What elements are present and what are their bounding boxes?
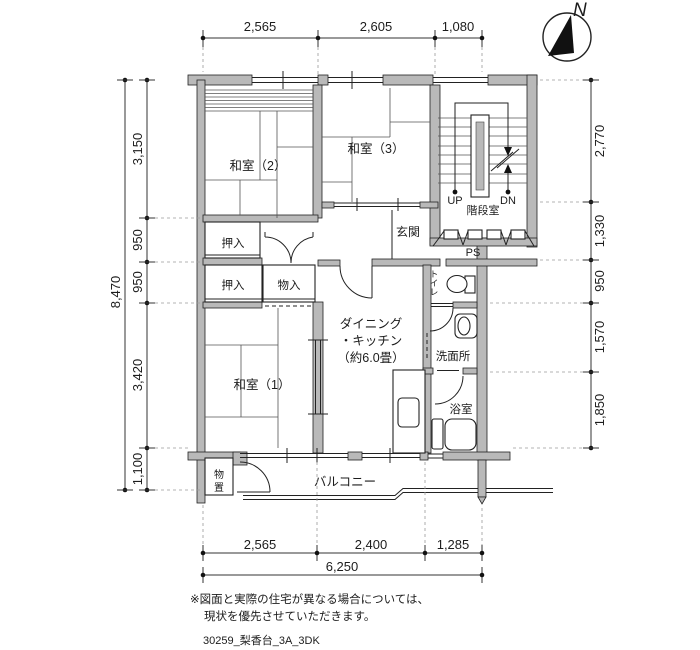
north-arrow-icon <box>548 15 574 56</box>
balcony <box>243 460 553 504</box>
dim-top-3: 1,080 <box>442 19 475 34</box>
dim-right-1: 2,770 <box>592 125 607 158</box>
dim-top-2: 2,605 <box>360 19 393 34</box>
bathroom-door <box>435 376 463 404</box>
bath-mat-area <box>432 419 443 449</box>
closet-double-door <box>265 232 313 263</box>
balcony-partition <box>478 460 486 497</box>
stair-up-label: UP <box>447 195 462 207</box>
room-label-washitsu1: 和室（1） <box>234 377 291 392</box>
room-label-dk-line2: ・キッチン <box>340 334 403 348</box>
dim-bottom-3: 1,285 <box>437 537 470 552</box>
dim-left-4: 3,420 <box>130 359 145 392</box>
dimension-left: 8,470 3,150 950 950 3,420 1,100 <box>108 78 200 493</box>
room-label-oshiire-lower: 押入 <box>222 278 245 292</box>
floorplan-drawing: N <box>0 0 700 650</box>
toilet-bowl <box>447 276 467 293</box>
room-label-monooki-1: 物 <box>214 468 224 481</box>
room-label-balcony: バルコニー <box>314 475 376 489</box>
bathtub <box>445 419 476 450</box>
dim-bottom-total: 6,250 <box>326 559 359 574</box>
washroom-door <box>430 308 453 331</box>
room-label-oshiire-upper: 押入 <box>222 236 245 250</box>
room-label-senmenjo: 洗面所 <box>436 350 471 363</box>
dim-left-total: 8,470 <box>108 276 123 309</box>
dk-door <box>340 266 372 298</box>
room-label-washitsu2: 和室（2） <box>230 158 287 173</box>
compass-north-label: N <box>573 0 587 21</box>
room-label-washitsu3: 和室（3） <box>348 141 405 156</box>
room-label-ps: PS <box>466 247 481 259</box>
dim-left-3: 950 <box>130 271 145 293</box>
kitchen-sink <box>398 398 419 427</box>
room-label-genkan: 玄関 <box>396 224 420 239</box>
stair-break-mark <box>491 149 519 171</box>
dim-right-3: 950 <box>592 270 607 292</box>
footer: ※図面と実際の住宅が異なる場合については、 現状を優先させていただきます。 30… <box>190 592 429 647</box>
room-label-kaidanshitsu: 階段室 <box>467 203 500 217</box>
dim-bottom-2: 2,400 <box>355 537 388 552</box>
dim-bottom-1: 2,565 <box>244 537 277 552</box>
room-label-monooki-2: 置 <box>214 482 224 494</box>
dim-right-2: 1,330 <box>592 215 607 248</box>
floorplan-page: N <box>0 0 700 650</box>
room-label-mononyu: 物入 <box>278 278 301 292</box>
staircase <box>438 103 527 197</box>
dim-left-1: 3,150 <box>130 133 145 166</box>
stair-dn-label: DN <box>500 195 516 207</box>
dim-right-4: 1,570 <box>592 321 607 354</box>
room-label-toilet-3: レ <box>430 287 439 297</box>
dim-left-5: 1,100 <box>130 453 145 486</box>
footer-note-line1: ※図面と実際の住宅が異なる場合については、 <box>190 592 429 606</box>
dim-top-1: 2,565 <box>244 19 277 34</box>
stair-arrow-up <box>504 164 512 173</box>
dim-right-5: 1,850 <box>592 394 607 427</box>
balcony-door <box>237 462 270 492</box>
compass: N <box>543 0 591 61</box>
room-label-dk-line3: （約6.0畳） <box>337 350 404 365</box>
dimension-top: 2,565 2,605 1,080 <box>201 19 485 75</box>
drawing-id: 30259_梨香台_3A_3DK <box>203 633 320 647</box>
room-label-yokushitsu: 浴室 <box>450 402 473 416</box>
dim-left-2: 950 <box>130 229 145 251</box>
footer-note-line2: 現状を優先させていただきます。 <box>204 609 375 623</box>
room-label-dk-line1: ダイニング <box>340 316 403 331</box>
